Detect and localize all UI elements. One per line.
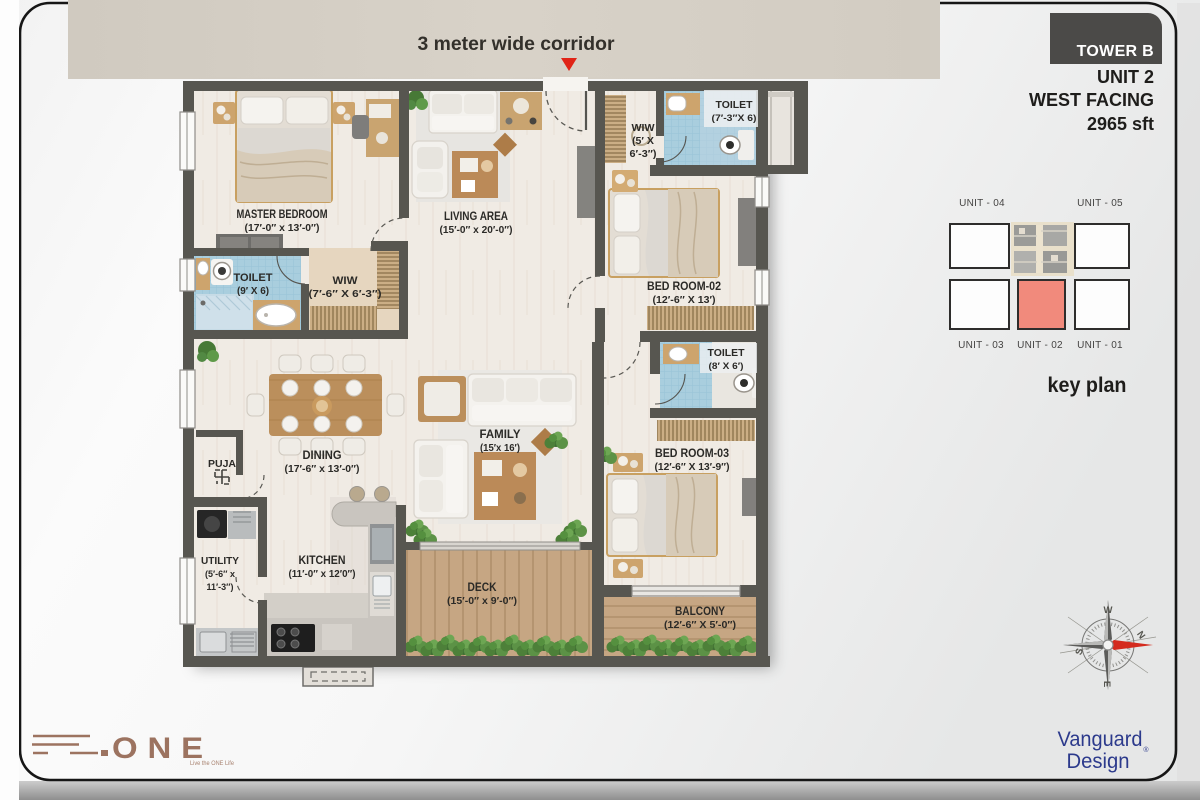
svg-text:Design: Design — [1067, 750, 1130, 773]
svg-text:(7′-3″X 6): (7′-3″X 6) — [712, 113, 757, 124]
svg-text:(15′-0″ x 9′-0″): (15′-0″ x 9′-0″) — [447, 595, 517, 607]
svg-text:W: W — [1104, 605, 1113, 616]
svg-text:UNIT - 02: UNIT - 02 — [1017, 340, 1063, 351]
svg-text:BALCONY: BALCONY — [675, 606, 725, 618]
svg-text:®: ® — [1143, 746, 1149, 754]
svg-text:(17′-0″ x 13′-0″): (17′-0″ x 13′-0″) — [245, 222, 320, 234]
svg-text:TOILET: TOILET — [234, 272, 273, 284]
svg-text:UNIT - 05: UNIT - 05 — [1077, 198, 1123, 209]
svg-text:TOILET: TOILET — [708, 347, 746, 359]
svg-text:(7′-6″ X 6′-3″): (7′-6″ X 6′-3″) — [309, 288, 382, 300]
svg-text:(5′ X: (5′ X — [632, 136, 654, 147]
svg-text:UNIT - 04: UNIT - 04 — [959, 198, 1005, 209]
svg-text:(17′-6″ x 13′-0″): (17′-6″ x 13′-0″) — [285, 463, 360, 475]
svg-text:key plan: key plan — [1048, 374, 1127, 397]
svg-text:(9′ X 6): (9′ X 6) — [237, 285, 269, 297]
svg-text:(15′-0″ x 20′-0″): (15′-0″ x 20′-0″) — [440, 224, 513, 236]
svg-text:UTILITY: UTILITY — [201, 555, 239, 567]
svg-text:TOWER B: TOWER B — [1077, 43, 1154, 60]
svg-text:(12′-6″ X 13′-9″): (12′-6″ X 13′-9″) — [655, 461, 730, 473]
svg-text:DECK: DECK — [468, 582, 498, 594]
svg-text:WIW: WIW — [333, 275, 359, 287]
svg-text:WIW: WIW — [632, 122, 655, 134]
svg-text:WEST FACING: WEST FACING — [1029, 90, 1154, 110]
svg-text:PUJA: PUJA — [208, 458, 236, 470]
svg-text:(15′x 16′): (15′x 16′) — [480, 442, 520, 454]
svg-text:6′-3″): 6′-3″) — [630, 149, 657, 160]
svg-text:2965 sft: 2965 sft — [1087, 114, 1154, 134]
svg-text:E: E — [1101, 681, 1112, 687]
svg-text:LIVING AREA: LIVING AREA — [444, 211, 508, 223]
svg-text:UNIT - 03: UNIT - 03 — [958, 340, 1004, 351]
svg-text:11′-3″): 11′-3″) — [207, 582, 234, 593]
svg-text:KITCHEN: KITCHEN — [299, 555, 346, 567]
svg-text:DINING: DINING — [303, 450, 342, 462]
svg-text:(12′-6″ X 13′): (12′-6″ X 13′) — [653, 294, 716, 306]
svg-text:Live the ONE Life: Live the ONE Life — [190, 761, 235, 767]
svg-text:BED ROOM-02: BED ROOM-02 — [647, 281, 721, 293]
svg-text:BED ROOM-03: BED ROOM-03 — [655, 448, 729, 460]
svg-text:MASTER BEDROOM: MASTER BEDROOM — [237, 209, 328, 221]
svg-text:UNIT - 01: UNIT - 01 — [1077, 340, 1123, 351]
svg-text:(8′ X 6′): (8′ X 6′) — [709, 361, 744, 372]
svg-text:UNIT 2: UNIT 2 — [1097, 67, 1154, 87]
svg-text:3 meter wide corridor: 3 meter wide corridor — [418, 34, 616, 55]
svg-text:(11′-0″ x 12′0″): (11′-0″ x 12′0″) — [289, 568, 356, 580]
svg-text:(12′-6″ X 5′-0″): (12′-6″ X 5′-0″) — [664, 619, 736, 631]
svg-text:Vanguard: Vanguard — [1058, 728, 1143, 751]
svg-text:TOILET: TOILET — [716, 99, 754, 111]
svg-text:FAMILY: FAMILY — [480, 429, 521, 441]
svg-text:(5′-6″ x: (5′-6″ x — [205, 569, 236, 580]
